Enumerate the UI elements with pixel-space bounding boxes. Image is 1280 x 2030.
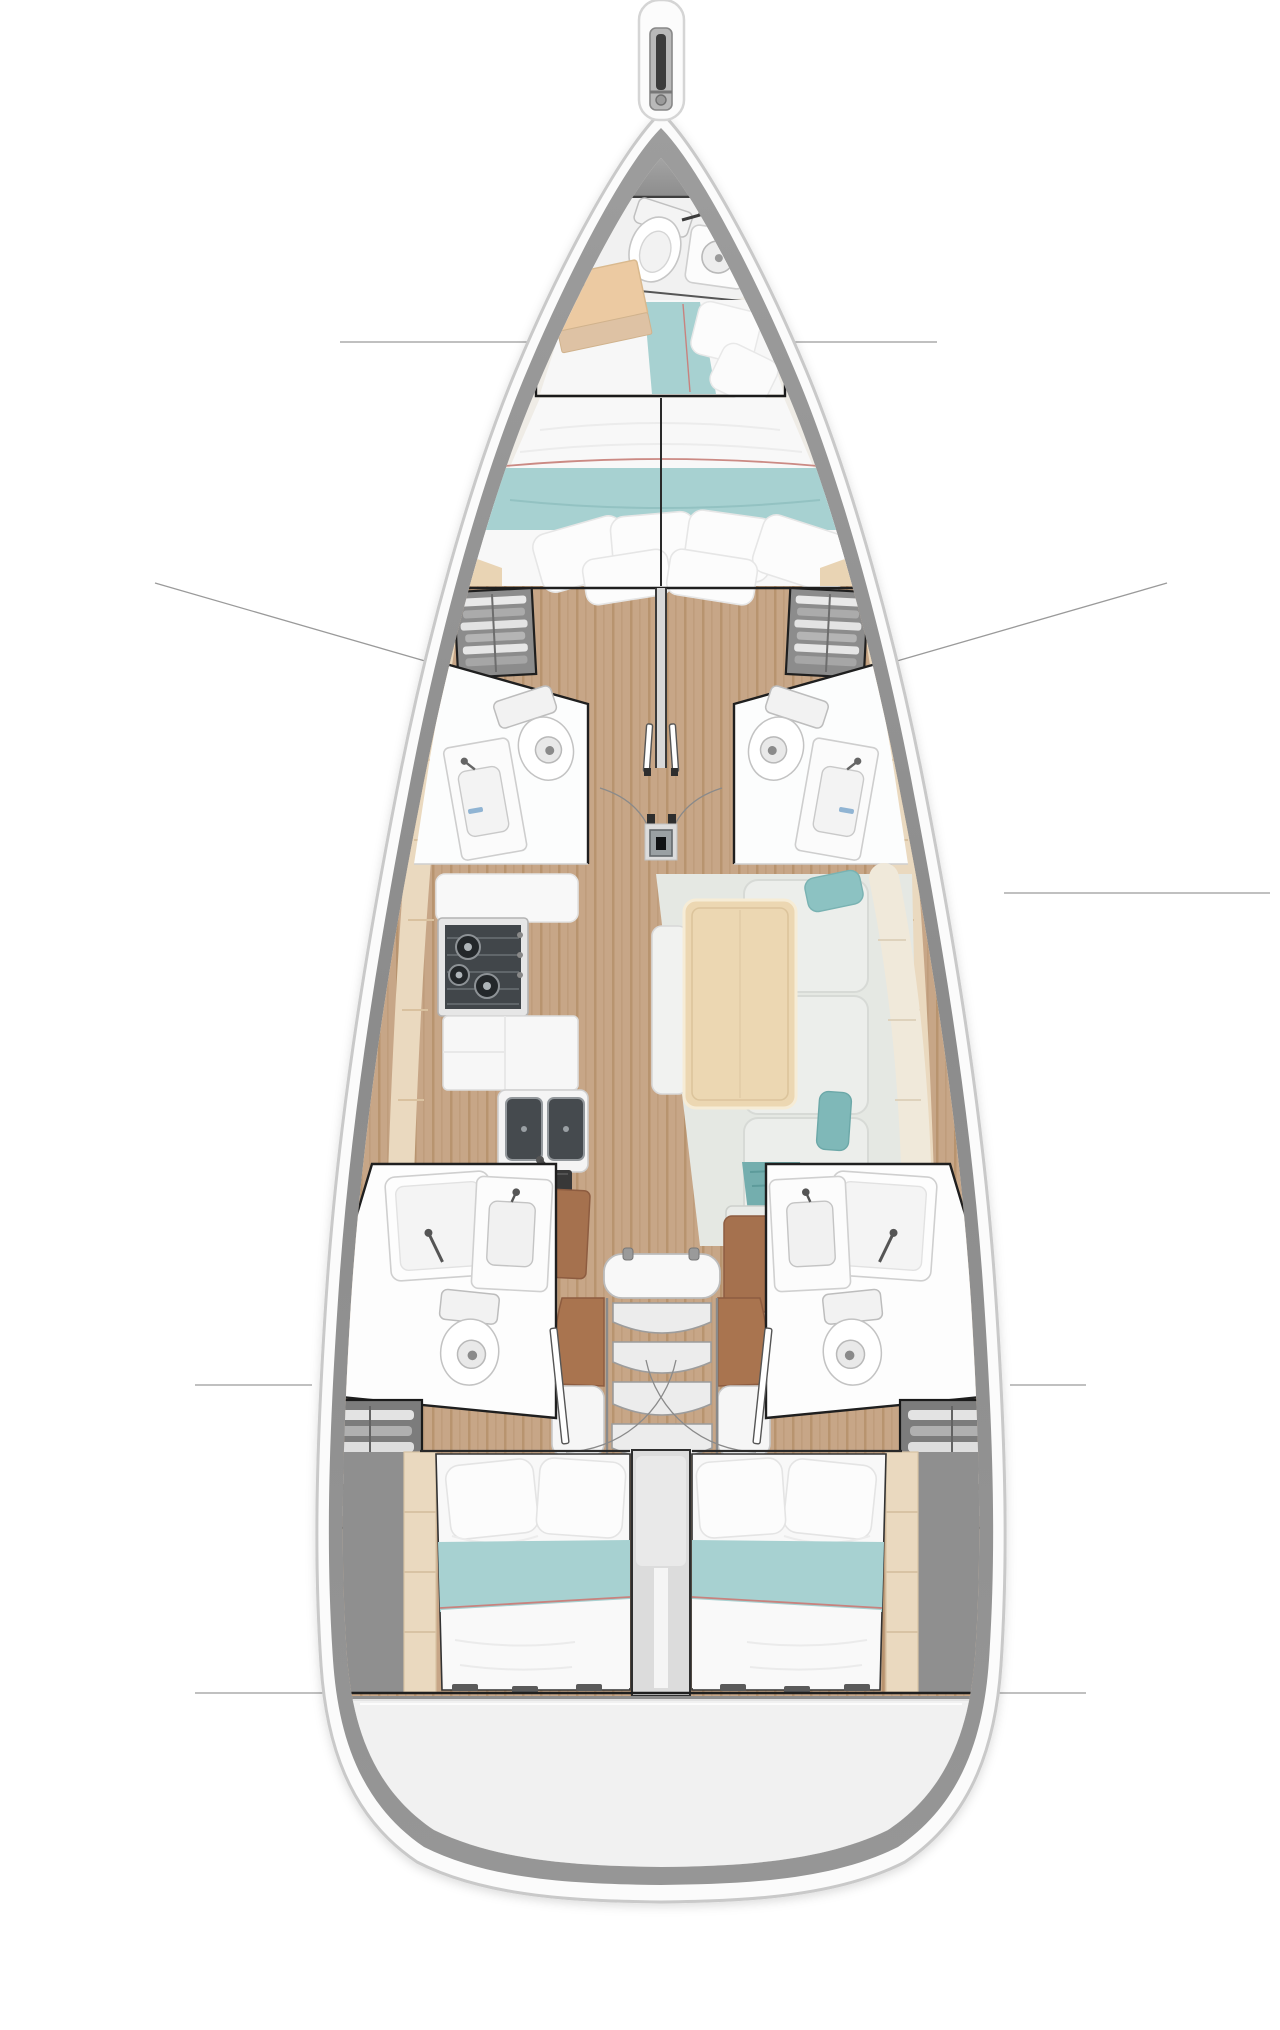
anchor-roller-icon xyxy=(650,28,672,110)
bowsprit xyxy=(639,0,684,120)
landing xyxy=(636,1456,686,1566)
yacht-floorplan-drawing xyxy=(0,0,1280,2030)
mast-foot xyxy=(645,824,677,860)
entry-sill xyxy=(604,1254,720,1298)
floorplan-canvas xyxy=(0,0,1280,2030)
stove-icon xyxy=(438,918,528,1016)
galley-worktop xyxy=(436,874,578,922)
callout-wardrobe-starboard xyxy=(890,583,1167,663)
wardrobe-port xyxy=(454,588,536,678)
teal-cushion xyxy=(816,1091,852,1151)
aft-cabin-side-starboard xyxy=(886,1452,988,1692)
aft-berth-starboard xyxy=(692,1451,902,1693)
aft-berth-port xyxy=(420,1451,630,1693)
dining-table xyxy=(684,900,796,1108)
callout-wardrobe-port xyxy=(155,583,432,663)
wardrobe-starboard xyxy=(786,588,868,678)
aft-cabin-side-port xyxy=(334,1452,436,1692)
